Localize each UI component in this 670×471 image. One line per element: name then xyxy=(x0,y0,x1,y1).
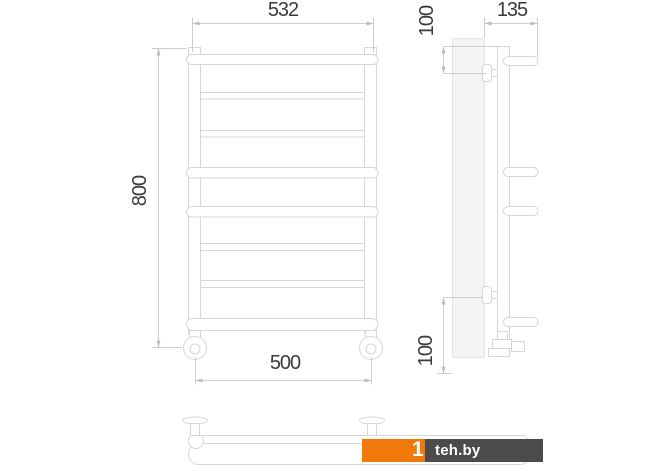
bottom-bracket-stem xyxy=(191,424,200,436)
bottom-bracket-flange xyxy=(183,417,208,424)
bottom-bracket-stem xyxy=(368,424,377,436)
side-valve-part xyxy=(512,342,525,352)
drawing-linework xyxy=(0,0,670,471)
side-bracket-flange xyxy=(483,287,492,304)
front-rung-thin xyxy=(201,281,365,288)
front-rung-thin xyxy=(201,93,365,100)
front-mount-left xyxy=(184,337,207,360)
front-view xyxy=(184,48,383,360)
side-view xyxy=(453,39,539,358)
logo-site-name: teh.by xyxy=(425,439,543,462)
dim-label-top-offset: 100 xyxy=(417,0,437,43)
front-rung-wide xyxy=(187,207,379,218)
side-rung xyxy=(504,207,539,216)
dim-label-bottom-offset: 100 xyxy=(416,329,436,373)
watermark-logo: teh.by 1 xyxy=(362,439,543,462)
side-valve-part xyxy=(493,340,512,349)
side-collector-tube xyxy=(498,47,510,343)
side-rung xyxy=(504,168,539,177)
front-tube-right xyxy=(365,48,377,334)
side-valve-part xyxy=(489,349,510,357)
dim-135 xyxy=(485,18,538,58)
dim-label-depth: 135 xyxy=(487,0,537,20)
front-tube-left xyxy=(189,48,201,334)
side-rung xyxy=(504,318,539,327)
front-rung-wide xyxy=(187,319,379,331)
side-rung xyxy=(504,57,539,66)
side-bracket-arm xyxy=(492,70,498,77)
front-rung-thin xyxy=(201,131,365,138)
side-bracket-arm xyxy=(492,292,498,299)
dim-label-bottom-width: 500 xyxy=(260,353,310,373)
front-rung-wide xyxy=(187,168,379,179)
front-rung-thin xyxy=(201,244,365,251)
side-wall-panel xyxy=(453,39,485,358)
dim-532 xyxy=(193,18,374,53)
towel-rail-drawing: 532 800 500 135 100 100 teh.by 1 xyxy=(0,0,670,471)
bottom-bracket-flange xyxy=(360,417,385,424)
logo-digit: 1 xyxy=(412,438,424,462)
dim-800 xyxy=(152,49,187,348)
dim-label-top-width: 532 xyxy=(258,0,308,20)
side-valve-part xyxy=(498,332,508,340)
front-rung-wide xyxy=(187,55,379,65)
front-mount-right xyxy=(360,337,383,360)
dim-label-height: 800 xyxy=(130,169,150,213)
